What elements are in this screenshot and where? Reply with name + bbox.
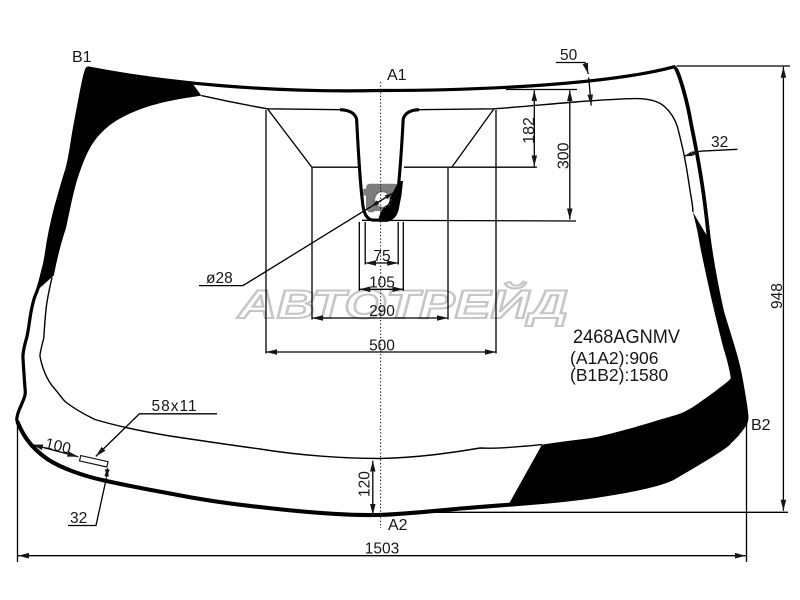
- svg-text:32: 32: [70, 510, 87, 527]
- svg-text:500: 500: [369, 338, 395, 355]
- svg-text:120: 120: [357, 471, 374, 497]
- svg-text:A1: A1: [387, 67, 407, 84]
- svg-text:B1: B1: [72, 49, 92, 66]
- svg-text:182: 182: [521, 117, 538, 144]
- svg-text:58x11: 58x11: [152, 398, 198, 415]
- svg-text:948: 948: [769, 283, 786, 309]
- svg-text:300: 300: [556, 142, 573, 169]
- svg-text:2468AGNMV: 2468AGNMV: [573, 326, 680, 348]
- svg-text:50: 50: [560, 47, 578, 64]
- svg-text:(B1B2):1580: (B1B2):1580: [570, 365, 669, 385]
- svg-text:1503: 1503: [365, 541, 399, 558]
- svg-text:75: 75: [373, 248, 390, 265]
- svg-text:A2: A2: [388, 517, 408, 534]
- svg-text:32: 32: [711, 134, 728, 151]
- svg-text:B2: B2: [751, 417, 771, 434]
- svg-text:290: 290: [369, 303, 395, 320]
- svg-text:ø28: ø28: [206, 270, 233, 287]
- svg-text:105: 105: [369, 274, 395, 291]
